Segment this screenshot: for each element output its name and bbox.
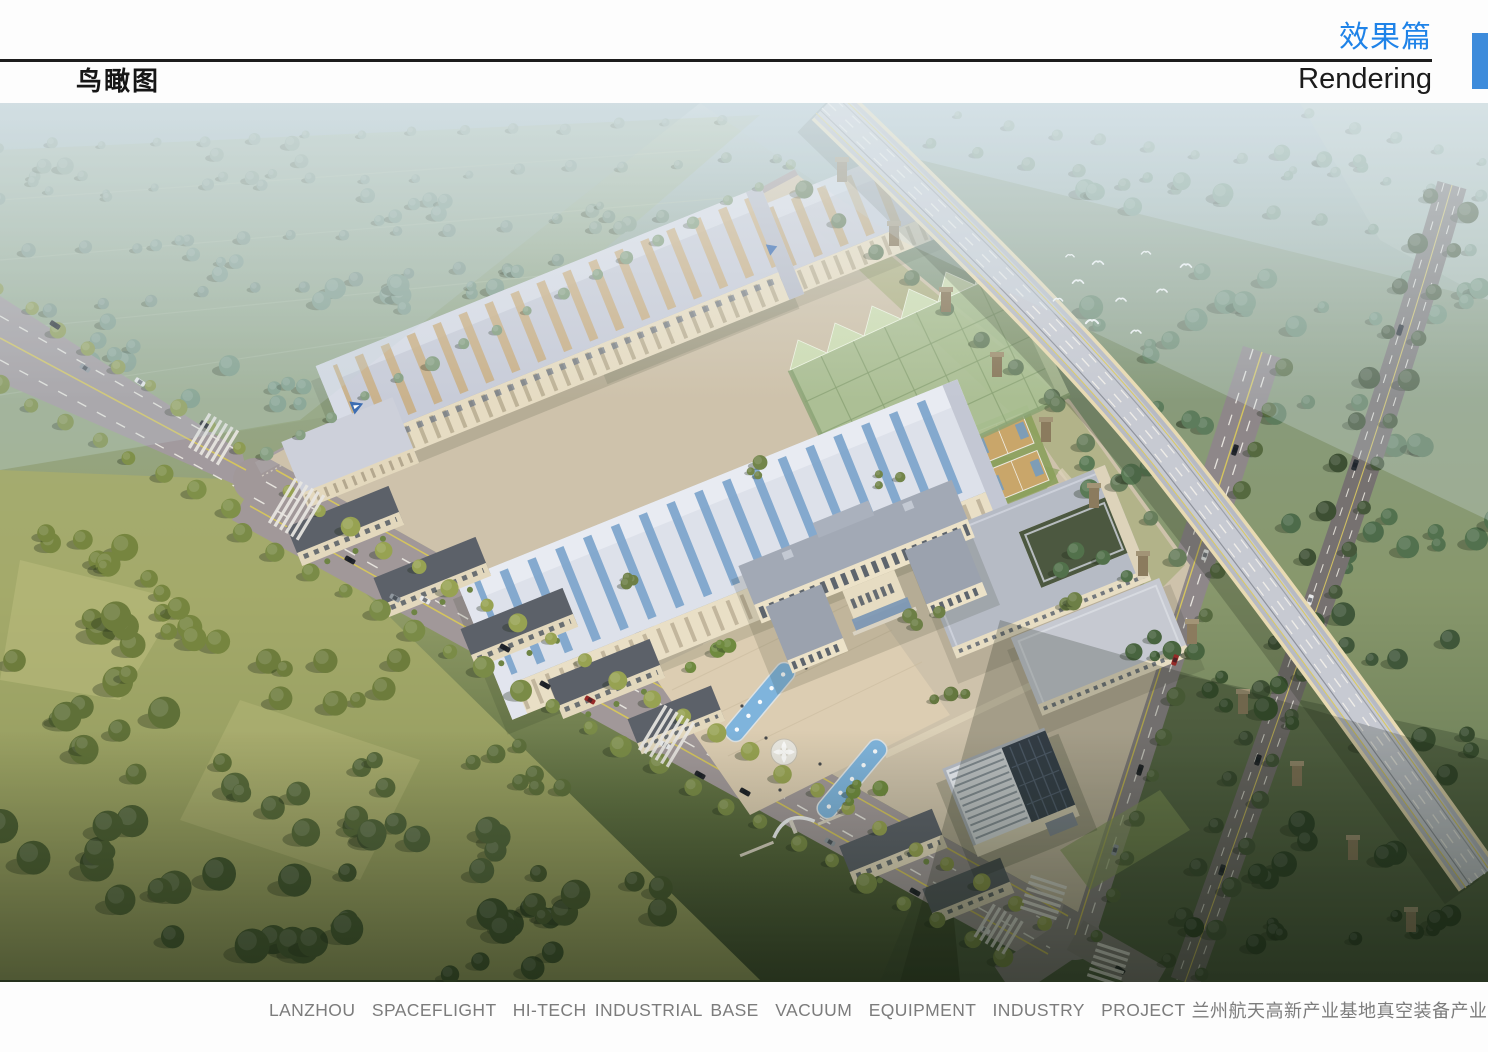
header-accent-marker [1472, 33, 1488, 89]
presentation-page: 效果篇 Rendering 鸟瞰图 [0, 0, 1488, 1052]
section-title-en: Rendering [1298, 63, 1432, 95]
caption-english: LANZHOU SPACEFLIGHT HI-TECH INDUSTRIAL B… [269, 1000, 1186, 1021]
aerial-rendering [0, 103, 1488, 982]
section-title-cn: 效果篇 [1339, 21, 1432, 55]
page-title: 鸟瞰图 [76, 66, 160, 96]
header-rule [0, 59, 1432, 62]
caption-chinese: 兰州航天高新产业基地真空装备产业园项目 [1192, 997, 1488, 1023]
footer-caption: LANZHOU SPACEFLIGHT HI-TECH INDUSTRIAL B… [173, 997, 1488, 1023]
